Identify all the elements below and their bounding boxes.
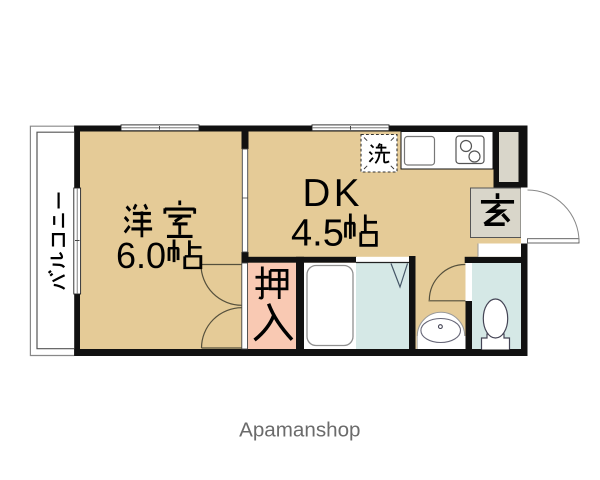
svg-text:DK: DK — [303, 172, 363, 215]
svg-text:4.5: 4.5 — [291, 213, 344, 255]
svg-text:6.0: 6.0 — [116, 235, 166, 276]
svg-text:Apamanshop: Apamanshop — [239, 418, 360, 441]
